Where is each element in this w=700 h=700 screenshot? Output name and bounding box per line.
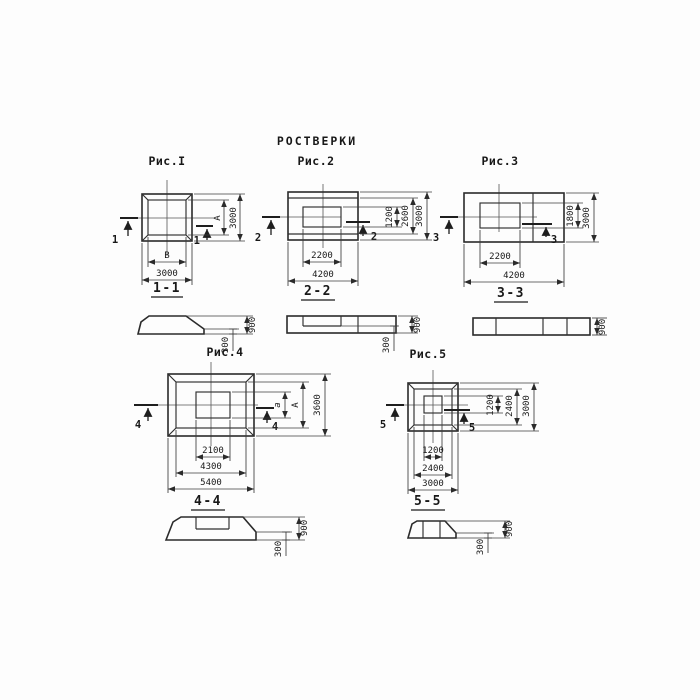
figure-4-caption: Рис.4 xyxy=(206,345,243,359)
dim-label: 900 xyxy=(505,521,515,537)
dim-total-height: 900 xyxy=(412,316,423,333)
cut-number: 5 xyxy=(380,419,386,431)
cut-number: 3 xyxy=(433,232,439,244)
dim-label: 4200 xyxy=(312,270,334,280)
figure-1-caption: Рис.I xyxy=(148,154,185,168)
figure-3-plan: 3 3 1800 3000 xyxy=(433,184,599,287)
dim-label: 300 xyxy=(476,539,486,555)
figure-1-section-title: 1-1 xyxy=(151,281,183,297)
figure-2-plan: 2 2 1200 2600 xyxy=(255,184,432,286)
dim-label: 2400 xyxy=(422,464,444,474)
dim-label: 900 xyxy=(248,317,258,333)
dim-outer-width: 4200 xyxy=(288,242,358,286)
dim-ledge-height: 300 xyxy=(476,533,492,555)
drawing-sheet: РОСТВЕРКИ Рис.I 1 1 xyxy=(0,0,700,700)
dim-socket-width: 2100 xyxy=(196,420,230,461)
figure-5-caption: Рис.5 xyxy=(409,347,446,361)
dim-label: 3000 xyxy=(422,479,444,489)
dim-label: 4300 xyxy=(200,462,222,472)
dim-inner-width: 2200 xyxy=(303,229,341,267)
dim-label: 1200 xyxy=(385,206,395,228)
cut-mark-left: 3 xyxy=(433,217,458,244)
dim-label: 2200 xyxy=(489,252,511,262)
figure-5-plan: 5 5 1200 2400 xyxy=(380,370,539,494)
dim-ledge-height: 300 xyxy=(274,532,290,557)
figure-4-section: 900 300 xyxy=(166,517,310,557)
cut-mark-right: 1 xyxy=(194,226,213,247)
figure-3-section-title: 3-3 xyxy=(494,286,528,302)
figure-4-plan: 4 4 а А 3600 xyxy=(134,362,331,493)
dim-label: 3000 xyxy=(582,207,592,229)
dim-label: 900 xyxy=(598,319,608,335)
cut-mark-left: 5 xyxy=(380,405,404,431)
cut-number: 4 xyxy=(272,421,278,433)
dim-label: 5400 xyxy=(200,478,222,488)
drawing-canvas: РОСТВЕРКИ Рис.I 1 1 xyxy=(0,0,700,700)
dim-label: 2100 xyxy=(202,446,224,456)
dim-label: В xyxy=(164,251,169,261)
dim-label: 4200 xyxy=(503,271,525,281)
section-title: 1-1 xyxy=(153,281,181,296)
dim-label: 1200 xyxy=(486,394,496,416)
figure-5-section: 900 300 xyxy=(408,521,515,555)
section-outline xyxy=(408,521,456,538)
plan-socket-outline xyxy=(480,203,520,228)
dim-label: 900 xyxy=(300,520,310,536)
dim-label: 300 xyxy=(274,541,284,557)
figure-1: Рис.I 1 1 xyxy=(112,154,258,353)
figure-4: Рис.4 4 4 xyxy=(134,345,331,557)
figure-5: Рис.5 5 5 xyxy=(380,347,539,555)
dim-label: 3000 xyxy=(229,207,239,229)
dim-label: 1200 xyxy=(422,446,444,456)
dim-label: 3000 xyxy=(415,205,425,227)
section-socket-notch xyxy=(196,517,229,529)
cut-number: 4 xyxy=(135,419,141,431)
dim-total-height: 900 xyxy=(299,517,310,540)
dim-outer-width: 4200 xyxy=(464,244,564,287)
cut-number: 2 xyxy=(255,232,261,244)
cut-mark-left: 1 xyxy=(112,218,138,246)
dim-inner-height: А xyxy=(188,200,229,235)
cut-mark-left: 2 xyxy=(255,217,280,244)
figure-3-section: 900 xyxy=(473,318,608,335)
figure-3-caption: Рис.3 xyxy=(481,154,518,168)
section-outline xyxy=(138,316,204,334)
cut-mark-right: 4 xyxy=(256,408,278,433)
dim-label: 2600 xyxy=(401,205,411,227)
section-title: 4-4 xyxy=(194,494,222,509)
figure-4-section-title: 4-4 xyxy=(191,494,225,510)
dim-label: А xyxy=(213,215,223,221)
figure-1-plan: 1 1 А 3000 В xyxy=(112,180,245,285)
dim-label: 3000 xyxy=(522,395,532,417)
cut-number: 1 xyxy=(112,234,118,246)
section-socket-notch xyxy=(303,316,341,326)
figure-2-caption: Рис.2 xyxy=(297,154,334,168)
sheet-title: РОСТВЕРКИ xyxy=(277,134,357,148)
cut-number: 5 xyxy=(469,422,475,434)
dim-total-height: 900 xyxy=(505,521,515,538)
dim-inner-width: 2200 xyxy=(480,230,520,268)
cut-mark-left: 4 xyxy=(134,405,158,431)
cut-number: 3 xyxy=(551,234,557,246)
figure-3: Рис.3 3 3 1800 xyxy=(433,154,608,335)
section-title: 5-5 xyxy=(414,494,442,509)
dim-socket-height: 1200 xyxy=(343,206,402,228)
figure-2-section: 900 300 xyxy=(287,316,423,353)
section-title: 3-3 xyxy=(497,286,525,301)
dim-label: 1800 xyxy=(566,205,576,227)
dim-label: а xyxy=(273,402,283,407)
dim-total-height: 900 xyxy=(247,316,258,334)
figure-5-section-title: 5-5 xyxy=(411,494,445,510)
figure-2: Рис.2 2 2 1200 xyxy=(255,154,432,353)
cut-number: 2 xyxy=(371,231,377,243)
section-title: 2-2 xyxy=(304,284,332,299)
dim-label: 2200 xyxy=(311,251,333,261)
plan-outer-outline xyxy=(464,193,564,242)
dim-label: 900 xyxy=(413,317,423,333)
section-outline xyxy=(473,318,590,335)
dim-label: 3000 xyxy=(156,269,178,279)
dim-total-height: 900 xyxy=(597,318,608,335)
figure-2-section-title: 2-2 xyxy=(301,284,335,300)
dim-label: 300 xyxy=(382,337,392,353)
dim-label: 2400 xyxy=(505,395,515,417)
dim-label: 3600 xyxy=(313,394,323,416)
dim-label: А xyxy=(291,402,301,408)
